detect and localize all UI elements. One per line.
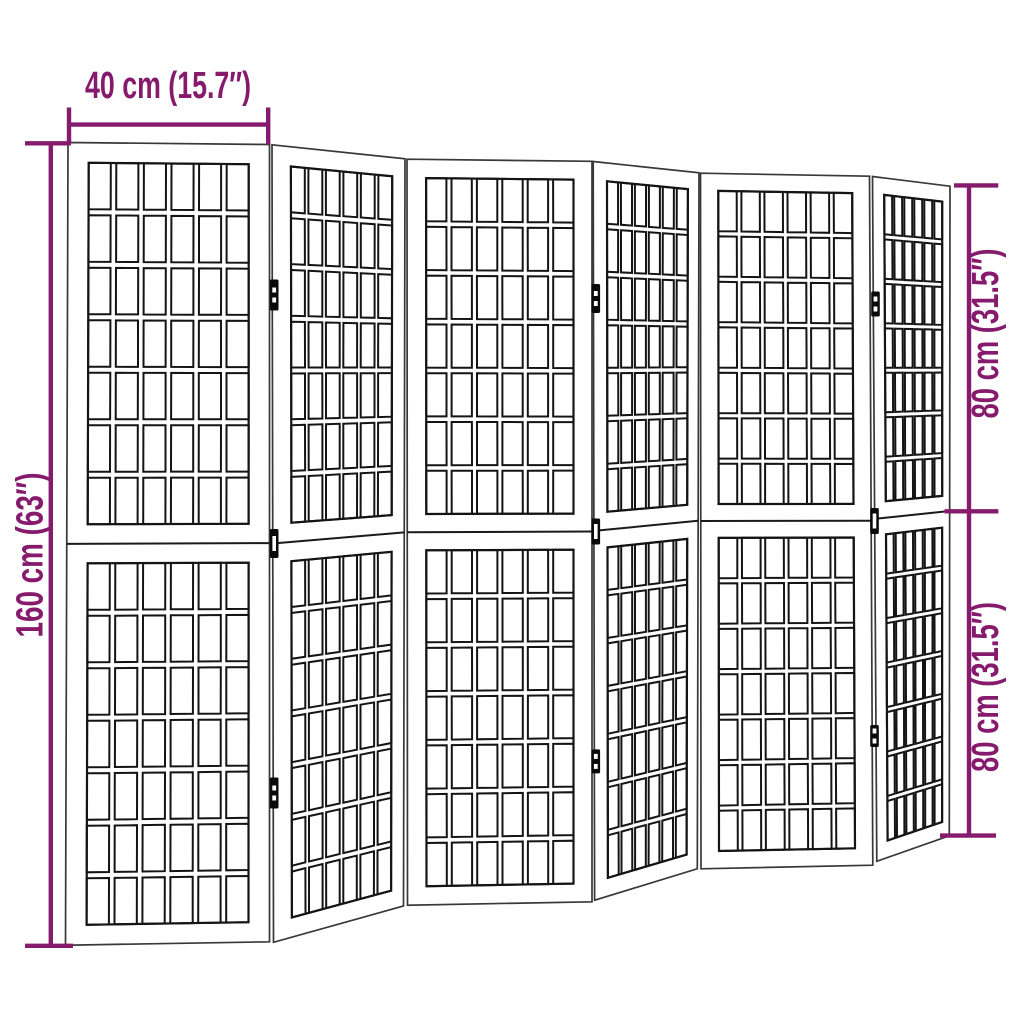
svg-text:80 cm (31.5″): 80 cm (31.5″) [965,602,1007,772]
svg-text:40 cm (15.7″): 40 cm (15.7″) [85,65,251,107]
svg-text:80 cm (31.5″): 80 cm (31.5″) [965,249,1007,419]
svg-text:160 cm (63″): 160 cm (63″) [10,473,52,638]
